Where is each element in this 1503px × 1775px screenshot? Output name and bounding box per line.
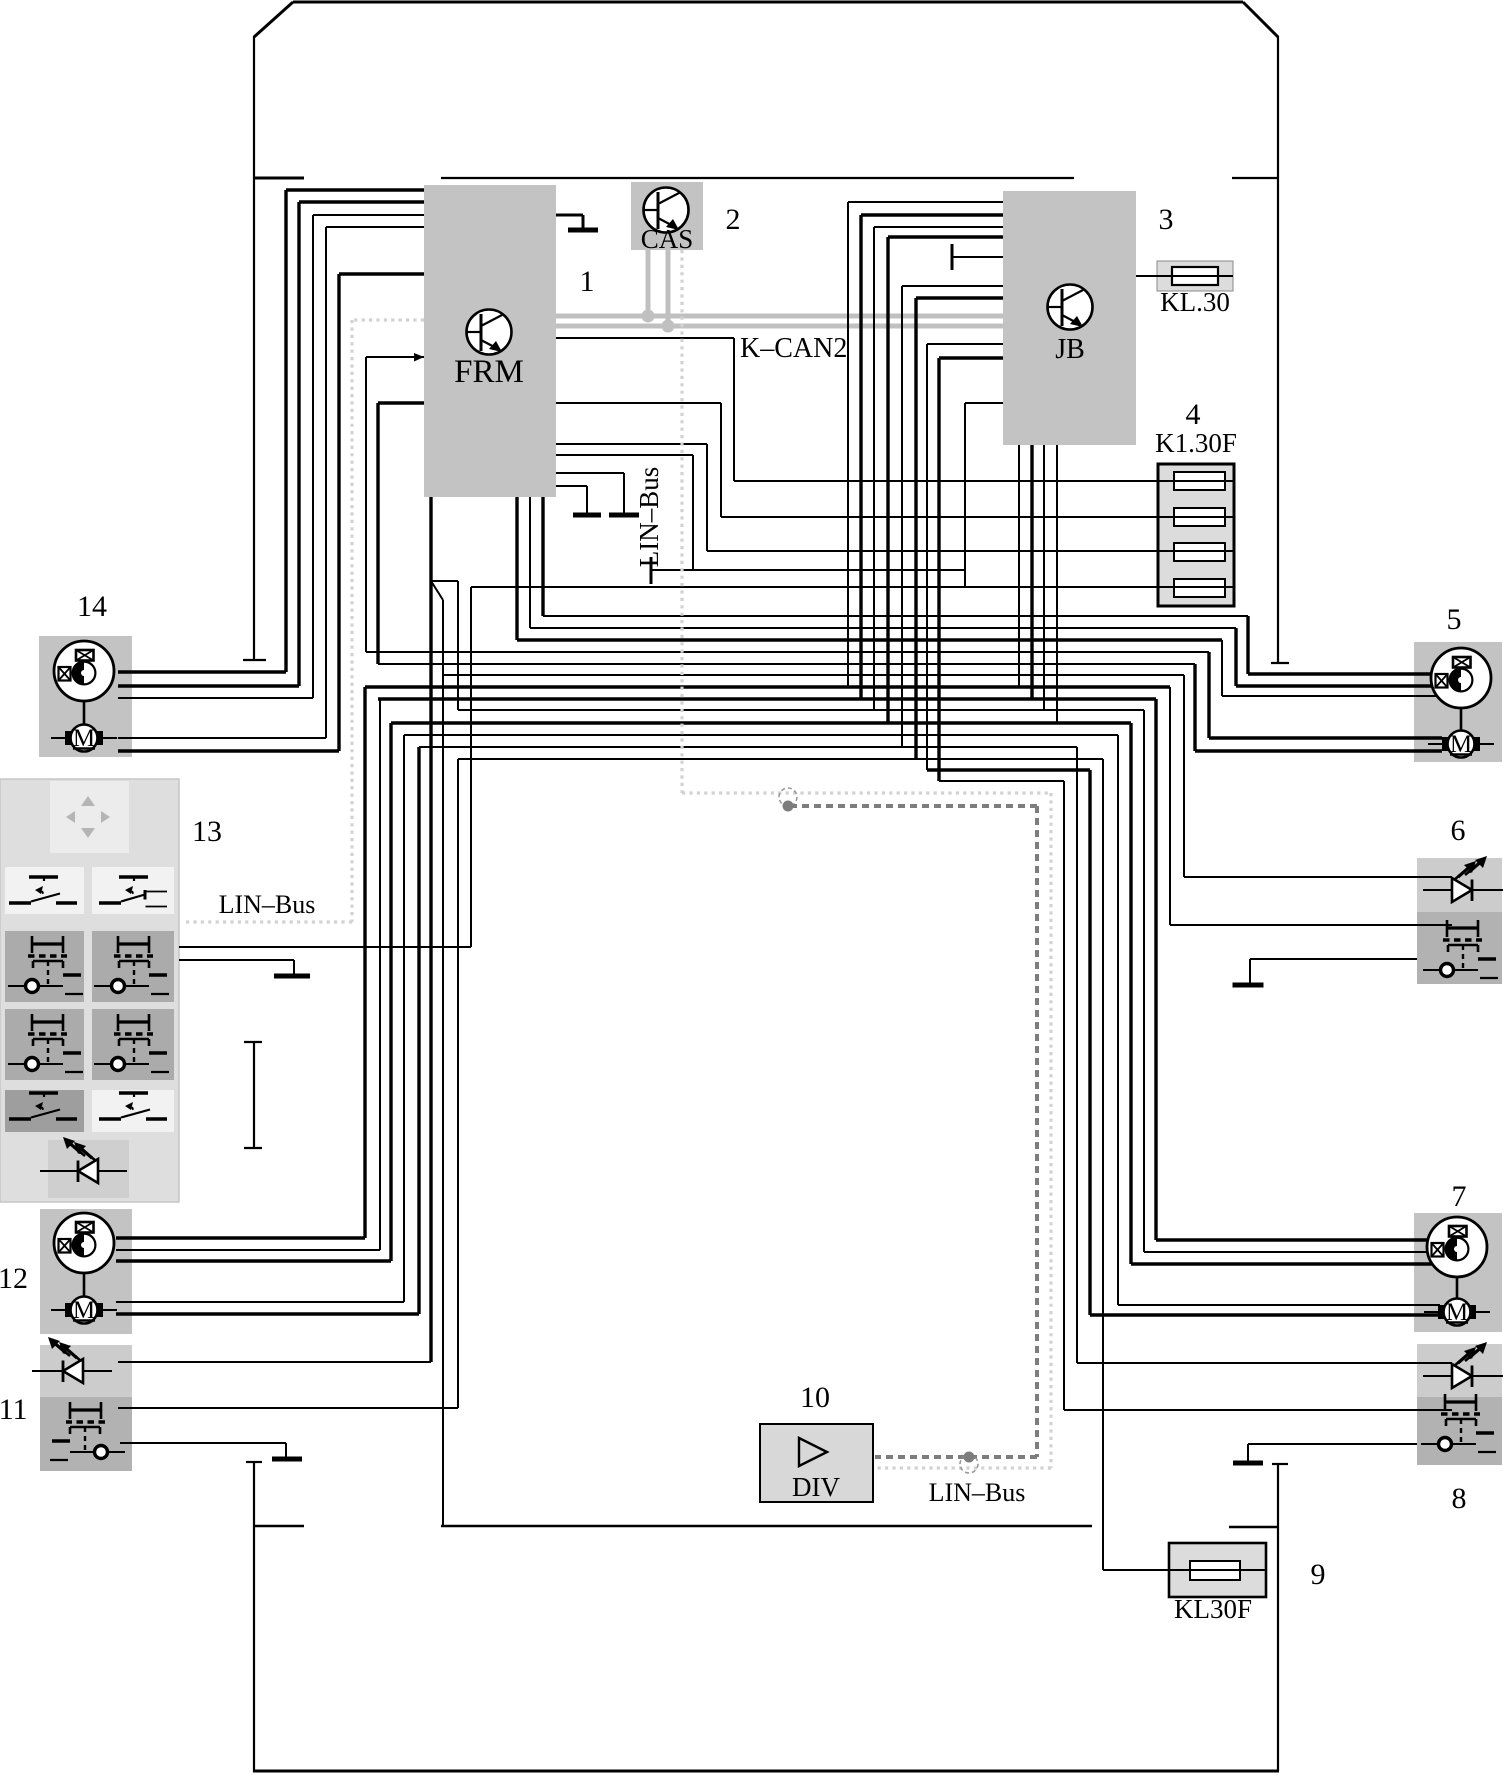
svg-text:DIV: DIV (792, 1472, 840, 1502)
svg-text:LIN–Bus: LIN–Bus (634, 467, 664, 568)
svg-text:5: 5 (1447, 603, 1462, 636)
svg-text:KL30F: KL30F (1174, 1594, 1252, 1624)
svg-text:K1.30F: K1.30F (1155, 428, 1237, 458)
svg-text:1: 1 (580, 265, 595, 298)
svg-text:14: 14 (77, 590, 107, 623)
svg-text:11: 11 (0, 1393, 27, 1426)
svg-text:7: 7 (1452, 1180, 1467, 1213)
svg-text:10: 10 (800, 1381, 830, 1414)
svg-text:6: 6 (1451, 814, 1466, 847)
svg-text:LIN–Bus: LIN–Bus (219, 890, 316, 919)
svg-text:4: 4 (1186, 398, 1201, 431)
svg-text:3: 3 (1159, 203, 1174, 236)
svg-text:8: 8 (1452, 1482, 1467, 1515)
svg-text:13: 13 (192, 815, 222, 848)
svg-text:12: 12 (0, 1262, 28, 1295)
svg-text:KL.30: KL.30 (1160, 287, 1230, 317)
svg-text:LIN–Bus: LIN–Bus (929, 1478, 1026, 1507)
svg-text:CAS: CAS (641, 224, 694, 254)
svg-text:K–CAN2: K–CAN2 (740, 333, 847, 364)
svg-text:JB: JB (1055, 334, 1085, 365)
svg-text:2: 2 (726, 203, 741, 236)
svg-text:9: 9 (1311, 1558, 1326, 1591)
svg-text:FRM: FRM (454, 354, 524, 390)
